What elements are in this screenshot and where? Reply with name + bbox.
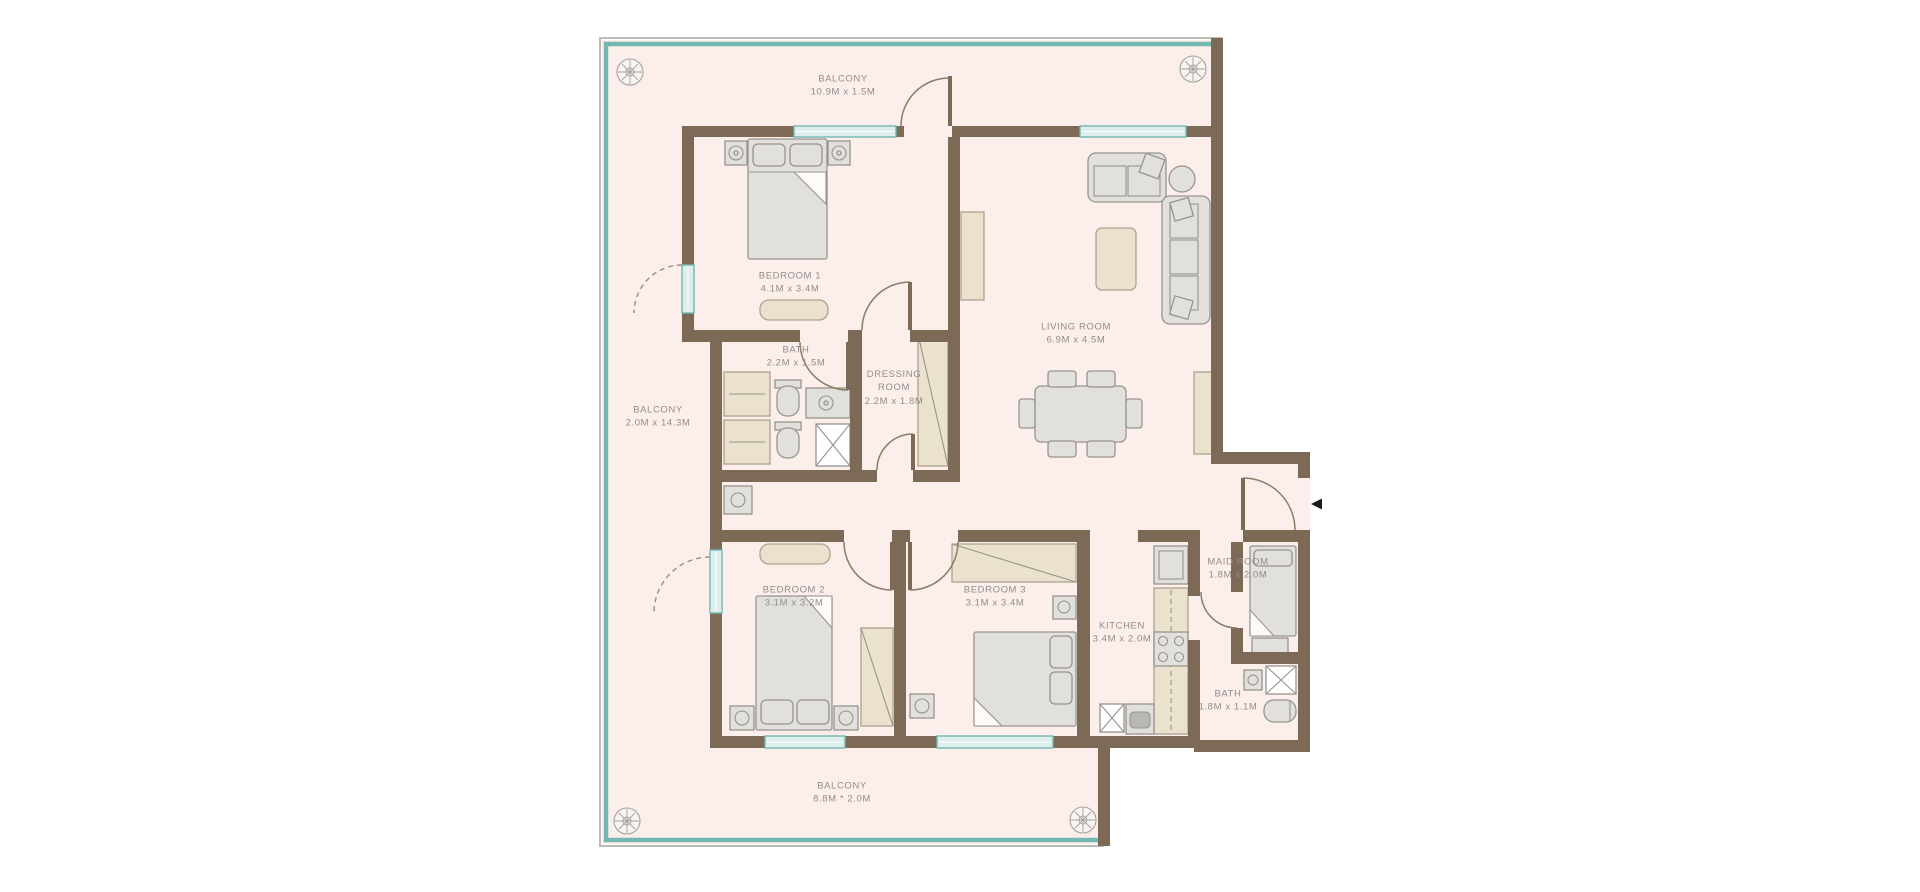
compass-rosette-icon (1180, 56, 1206, 82)
room-label-bath-2: BATH 1.8M x 1.1M (1178, 688, 1278, 715)
room-label-kitchen: KITCHEN 3.4M x 2.0M (1067, 620, 1177, 647)
room-dims: 8.8M * 2.0M (787, 793, 897, 806)
room-dims: 2.0M x 14.3M (603, 417, 713, 430)
room-label-maid-room: MAID ROOM 1.8M x 2.0M (1183, 556, 1293, 583)
room-name: BATH (1178, 688, 1278, 701)
compass-rosette-icon (617, 59, 643, 85)
room-dims: 4.1M x 3.4M (735, 283, 845, 296)
room-label-balcony-left: BALCONY 2.0M x 14.3M (603, 404, 713, 431)
floor-plan-page: BALCONY 10.9M x 1.5M BEDROOM 1 4.1M x 3.… (0, 0, 1920, 892)
room-name: LIVING ROOM (1016, 321, 1136, 334)
room-label-balcony-bottom: BALCONY 8.8M * 2.0M (787, 780, 897, 807)
room-dims: 3.1M x 3.2M (739, 597, 849, 610)
room-name: BALCONY (787, 780, 897, 793)
bench (760, 300, 828, 320)
room-dims: 2.2M x 1.5M (751, 357, 841, 370)
room-name: BALCONY (788, 73, 898, 86)
bench (760, 544, 830, 564)
room-label-bedroom-3: BEDROOM 3 3.1M x 3.4M (940, 584, 1050, 611)
room-name: BEDROOM 3 (940, 584, 1050, 597)
room-name: DRESSING ROOM (856, 368, 932, 395)
room-name: MAID ROOM (1183, 556, 1293, 569)
room-label-balcony-top: BALCONY 10.9M x 1.5M (788, 73, 898, 100)
room-dims: 1.8M x 2.0M (1183, 569, 1293, 582)
room-label-bath-1: BATH 2.2M x 1.5M (751, 344, 841, 371)
floor-plan: BALCONY 10.9M x 1.5M BEDROOM 1 4.1M x 3.… (598, 36, 1322, 854)
room-dims: 6.9M x 4.5M (1016, 334, 1136, 347)
room-name: KITCHEN (1067, 620, 1177, 633)
floor-plan-drawing (598, 36, 1322, 854)
room-name: BEDROOM 1 (735, 270, 845, 283)
entry-arrow-icon (1311, 497, 1322, 511)
room-dims: 10.9M x 1.5M (788, 86, 898, 99)
room-label-bedroom-1: BEDROOM 1 4.1M x 3.4M (735, 270, 845, 297)
room-dims: 1.8M x 1.1M (1178, 701, 1278, 714)
dining-table (1035, 386, 1126, 442)
room-label-bedroom-2: BEDROOM 2 3.1M x 3.2M (739, 584, 849, 611)
room-dims: 3.1M x 3.4M (940, 597, 1050, 610)
side-table-round (1169, 166, 1195, 192)
entry-cabinet (1194, 372, 1212, 454)
room-label-dressing-room: DRESSING ROOM 2.2M x 1.8M (856, 368, 932, 408)
room-dims: 2.2M x 1.8M (856, 395, 932, 408)
side-table (910, 694, 934, 718)
room-dims: 3.4M x 2.0M (1067, 633, 1177, 646)
compass-rosette-icon (614, 808, 640, 834)
room-label-living-room: LIVING ROOM 6.9M x 4.5M (1016, 321, 1136, 348)
toilet-icon (777, 386, 799, 416)
tv-console (961, 212, 984, 300)
room-name: BEDROOM 2 (739, 584, 849, 597)
corridor-cabinet (724, 486, 752, 514)
bidet-icon (777, 428, 799, 458)
compass-rosette-icon (1070, 807, 1096, 833)
room-name: BALCONY (603, 404, 713, 417)
room-name: BATH (751, 344, 841, 357)
coffee-table (1096, 228, 1136, 290)
